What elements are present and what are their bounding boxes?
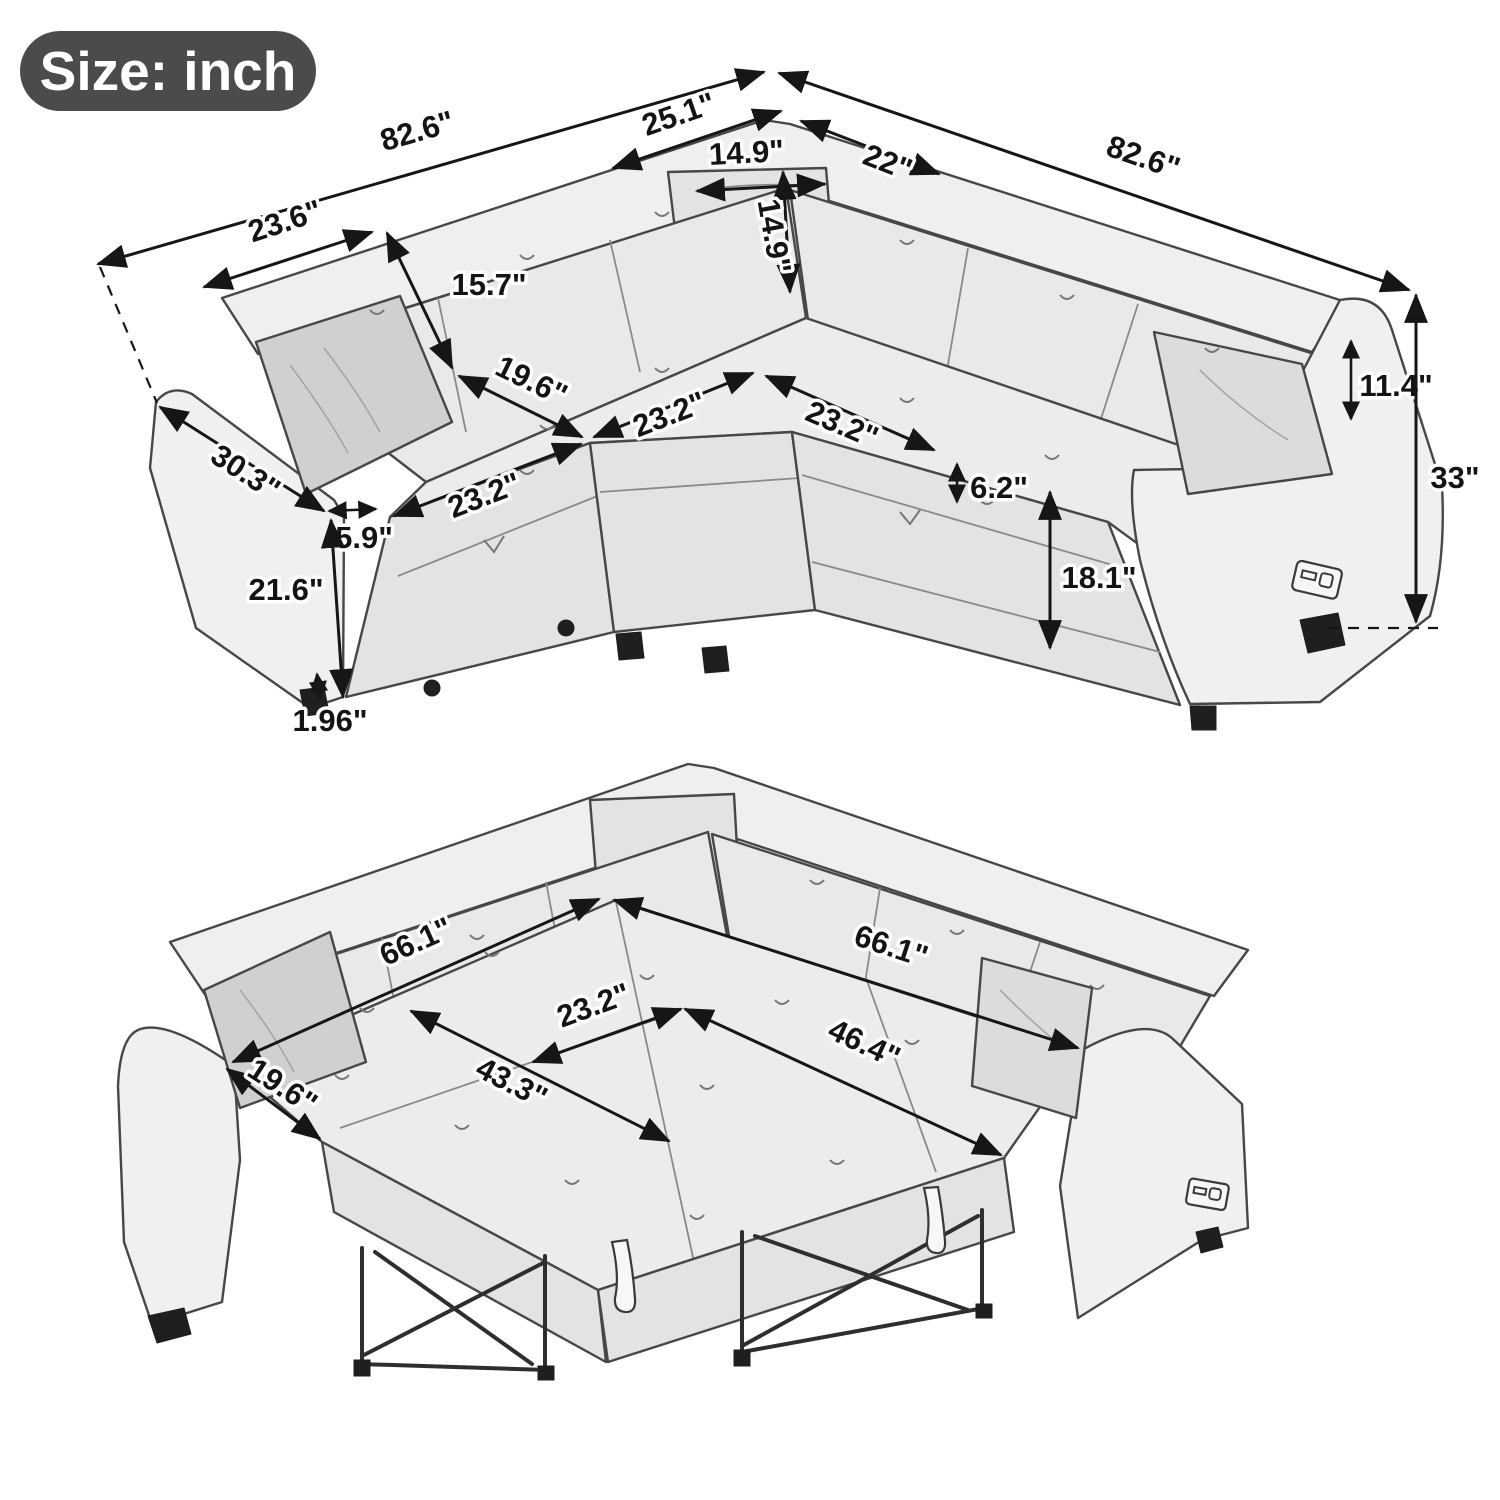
svg-text:11.4": 11.4" bbox=[1359, 368, 1432, 403]
svg-text:82.6": 82.6" bbox=[376, 104, 458, 158]
dimension-diagram-canvas: Size: inch bbox=[0, 0, 1500, 1500]
bed-left-armrest bbox=[118, 1028, 240, 1343]
svg-text:21.6": 21.6" bbox=[248, 572, 323, 607]
svg-text:14.9": 14.9" bbox=[708, 133, 785, 172]
svg-text:25.1": 25.1" bbox=[637, 85, 719, 143]
svg-text:23.6": 23.6" bbox=[244, 193, 326, 249]
svg-text:6.2": 6.2" bbox=[970, 470, 1028, 505]
svg-text:15.7": 15.7" bbox=[451, 267, 526, 302]
svg-text:33": 33" bbox=[1430, 460, 1479, 495]
extension-line-left bbox=[100, 267, 157, 403]
svg-text:5.9": 5.9" bbox=[335, 520, 393, 555]
svg-text:82.6": 82.6" bbox=[1102, 128, 1184, 186]
size-unit-badge: Size: inch bbox=[20, 31, 316, 111]
bed-right-armrest bbox=[1060, 1029, 1248, 1318]
svg-text:1.96": 1.96" bbox=[292, 703, 367, 738]
sofa-dimension-diagram: Size: inch bbox=[0, 0, 1500, 1500]
badge-label: Size: inch bbox=[40, 40, 297, 102]
usb-charging-port-icon-bed bbox=[1185, 1178, 1229, 1211]
sofa-view-illustration bbox=[150, 120, 1443, 730]
svg-text:18.1": 18.1" bbox=[1061, 560, 1136, 595]
